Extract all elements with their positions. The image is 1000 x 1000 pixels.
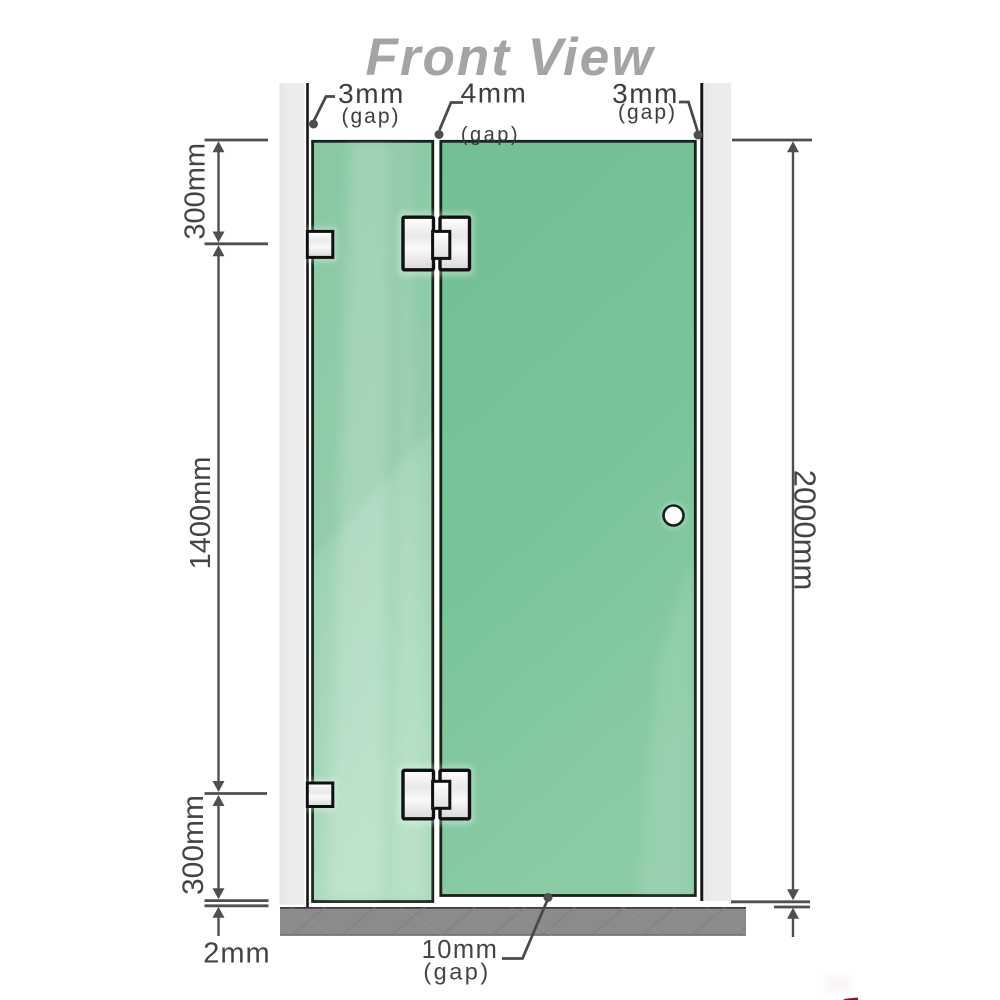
svg-text:300mm: 300mm (177, 795, 210, 895)
svg-text:(gap): (gap) (423, 959, 490, 985)
svg-text:1400mm: 1400mm (185, 457, 217, 570)
svg-text:(gap): (gap) (618, 101, 677, 124)
svg-text:2mm: 2mm (203, 938, 270, 970)
svg-text:4mm: 4mm (461, 78, 528, 109)
svg-text:(gap): (gap) (461, 124, 520, 146)
svg-text:(gap): (gap) (341, 105, 400, 128)
svg-text:300mm: 300mm (180, 143, 212, 240)
svg-text:2000mm: 2000mm (788, 470, 823, 591)
